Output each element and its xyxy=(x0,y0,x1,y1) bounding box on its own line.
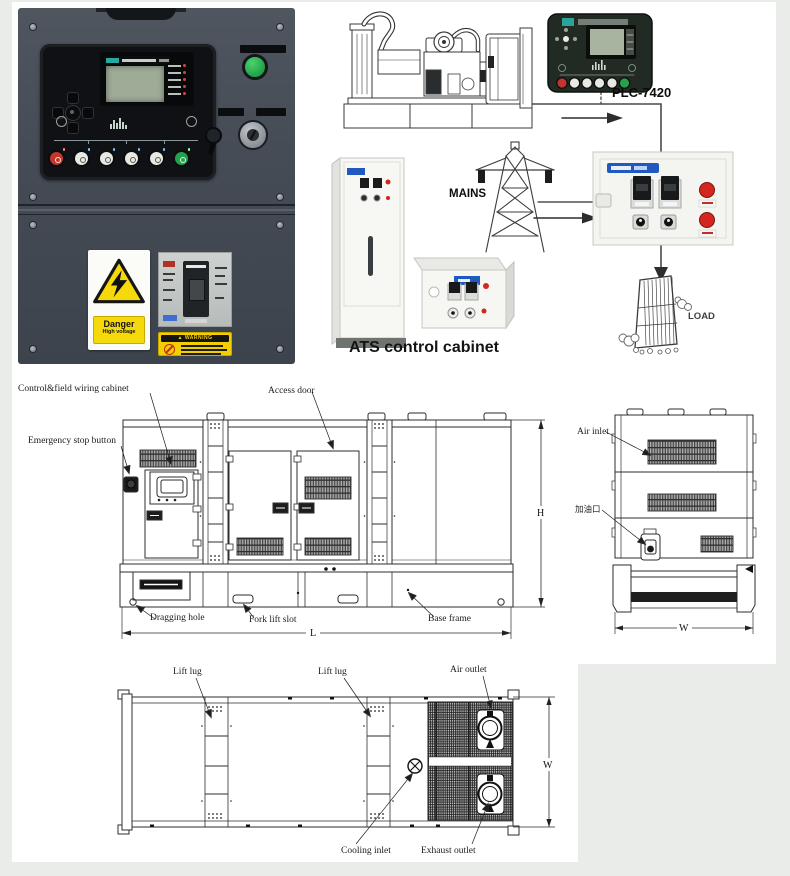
key-switch xyxy=(238,120,268,150)
dimension-H: H xyxy=(511,420,548,607)
access-door-callout: Access door xyxy=(268,386,315,396)
generator-control-panel-photo: Danger High voltage ▲ WARNING xyxy=(18,8,295,364)
mains-label: MAINS xyxy=(449,188,486,200)
test-mode-button xyxy=(123,150,140,167)
generator-line-art xyxy=(344,14,532,128)
lamp-switch-label-strip xyxy=(218,108,244,116)
access-door xyxy=(226,451,291,560)
plc-controller xyxy=(548,14,652,92)
fuel-filler-callout: 加油口 xyxy=(575,503,601,515)
dimension-W-end: W xyxy=(615,612,753,634)
lcd-status-column xyxy=(168,64,192,104)
module-button-row xyxy=(48,150,208,170)
emergency-stop-callout: Emergency stop button xyxy=(28,436,116,446)
control-door-vent xyxy=(140,450,196,467)
base-frame-callout: Base frame xyxy=(428,614,471,624)
air-inlet-vent xyxy=(648,440,716,464)
screw-icon xyxy=(277,194,283,200)
indicator-light xyxy=(242,54,268,80)
warning-triangle-icon: ▲ xyxy=(177,335,182,341)
base-frame xyxy=(120,564,513,607)
end-view-drawing: W xyxy=(602,409,756,634)
danger-text: Danger xyxy=(94,320,144,329)
dragging-hole-callout: Dragging hole xyxy=(150,613,205,623)
start-button xyxy=(173,150,190,167)
genset-control-module xyxy=(40,44,216,180)
cabinet-handle-grip xyxy=(106,8,176,20)
generator-icon xyxy=(110,118,127,129)
lcd-screen xyxy=(106,66,164,102)
end-width-dim-label: W xyxy=(679,623,689,634)
module-brand-bar xyxy=(104,56,170,64)
height-dim-label: H xyxy=(537,508,544,519)
cooling-inlet-callout: Cooling inlet xyxy=(341,846,391,856)
screw-icon xyxy=(30,24,36,30)
plc-screen xyxy=(590,29,624,55)
warning-band: ▲ WARNING xyxy=(161,335,229,342)
danger-sticker: Danger High voltage xyxy=(88,250,150,350)
danger-banner: Danger High voltage xyxy=(93,316,145,344)
brand-logo-chip xyxy=(106,58,119,63)
indicator-label-strip xyxy=(240,45,286,53)
screw-icon xyxy=(30,346,36,352)
lift-lug-callout-1: Lift lug xyxy=(173,667,202,677)
mute-button xyxy=(148,150,165,167)
auto-mode-button xyxy=(98,150,115,167)
length-dim-label: L xyxy=(310,628,316,639)
ats-wall-box xyxy=(414,258,514,328)
air-inlet-vent xyxy=(648,494,716,511)
air-outlet-callout: Air outlet xyxy=(450,665,487,675)
load-building xyxy=(619,276,692,354)
breaker-toggle xyxy=(189,279,205,301)
air-inlet-callout: Air inlet xyxy=(577,427,609,437)
cabinet-seam xyxy=(18,204,295,206)
ats-floor-cabinet xyxy=(332,158,406,348)
screw-icon xyxy=(30,194,36,200)
page: { "photo_panel": { "danger_sticker": {"l… xyxy=(0,0,790,876)
lcd-display xyxy=(100,52,194,106)
warning-sticker: ▲ WARNING xyxy=(158,332,232,356)
exhaust-outlet-callout: Exhaust outlet xyxy=(421,846,476,856)
lift-strap xyxy=(200,420,232,564)
mimic-diagram xyxy=(48,114,208,148)
radiator-section xyxy=(428,702,512,820)
access-door xyxy=(294,451,359,560)
lift-strap xyxy=(364,420,396,564)
ats-panel xyxy=(593,152,733,245)
key-switch-label-strip xyxy=(256,108,286,116)
control-cabinet-callout: Control&field wiring cabinet xyxy=(18,384,129,394)
high-voltage-text: High voltage xyxy=(94,329,144,336)
plc-model-label: PLC-7420 xyxy=(612,85,671,100)
engineering-drawings: L H xyxy=(0,376,790,876)
top-width-dim-label: W xyxy=(543,760,553,771)
exhaust-outlet-fan xyxy=(477,774,504,814)
air-outlet-fan xyxy=(477,710,504,750)
cabinet-door-handle xyxy=(368,236,373,276)
toggle-switch xyxy=(205,127,222,144)
end-view-base xyxy=(613,565,755,612)
fuel-icon xyxy=(56,116,67,127)
mains-icon xyxy=(186,116,197,127)
cooling-inlet xyxy=(408,759,422,773)
stop-button xyxy=(48,150,65,167)
screw-icon xyxy=(30,222,36,228)
circuit-breaker-panel xyxy=(158,252,232,327)
warning-title: WARNING xyxy=(185,335,213,341)
screw-icon xyxy=(277,346,283,352)
dimension-W-top: W xyxy=(513,697,557,827)
lift-lug-callout-2: Lift lug xyxy=(318,667,347,677)
fuel-filler xyxy=(641,529,660,560)
ats-cabinet-caption: ATS control cabinet xyxy=(349,339,499,357)
manual-mode-button xyxy=(73,150,90,167)
high-voltage-triangle-icon xyxy=(92,256,146,306)
screw-icon xyxy=(277,222,283,228)
screw-icon xyxy=(277,24,283,30)
load-label: LOAD xyxy=(688,311,715,322)
system-flow-diagram xyxy=(330,8,790,376)
breaker-body xyxy=(183,261,209,317)
fork-lift-slot-callout: Fork lift slot xyxy=(249,615,297,625)
mains-tower xyxy=(476,142,554,252)
top-view-drawing: W xyxy=(118,676,557,844)
side-view-drawing: L H xyxy=(120,392,548,639)
prohibition-icon xyxy=(164,344,175,355)
